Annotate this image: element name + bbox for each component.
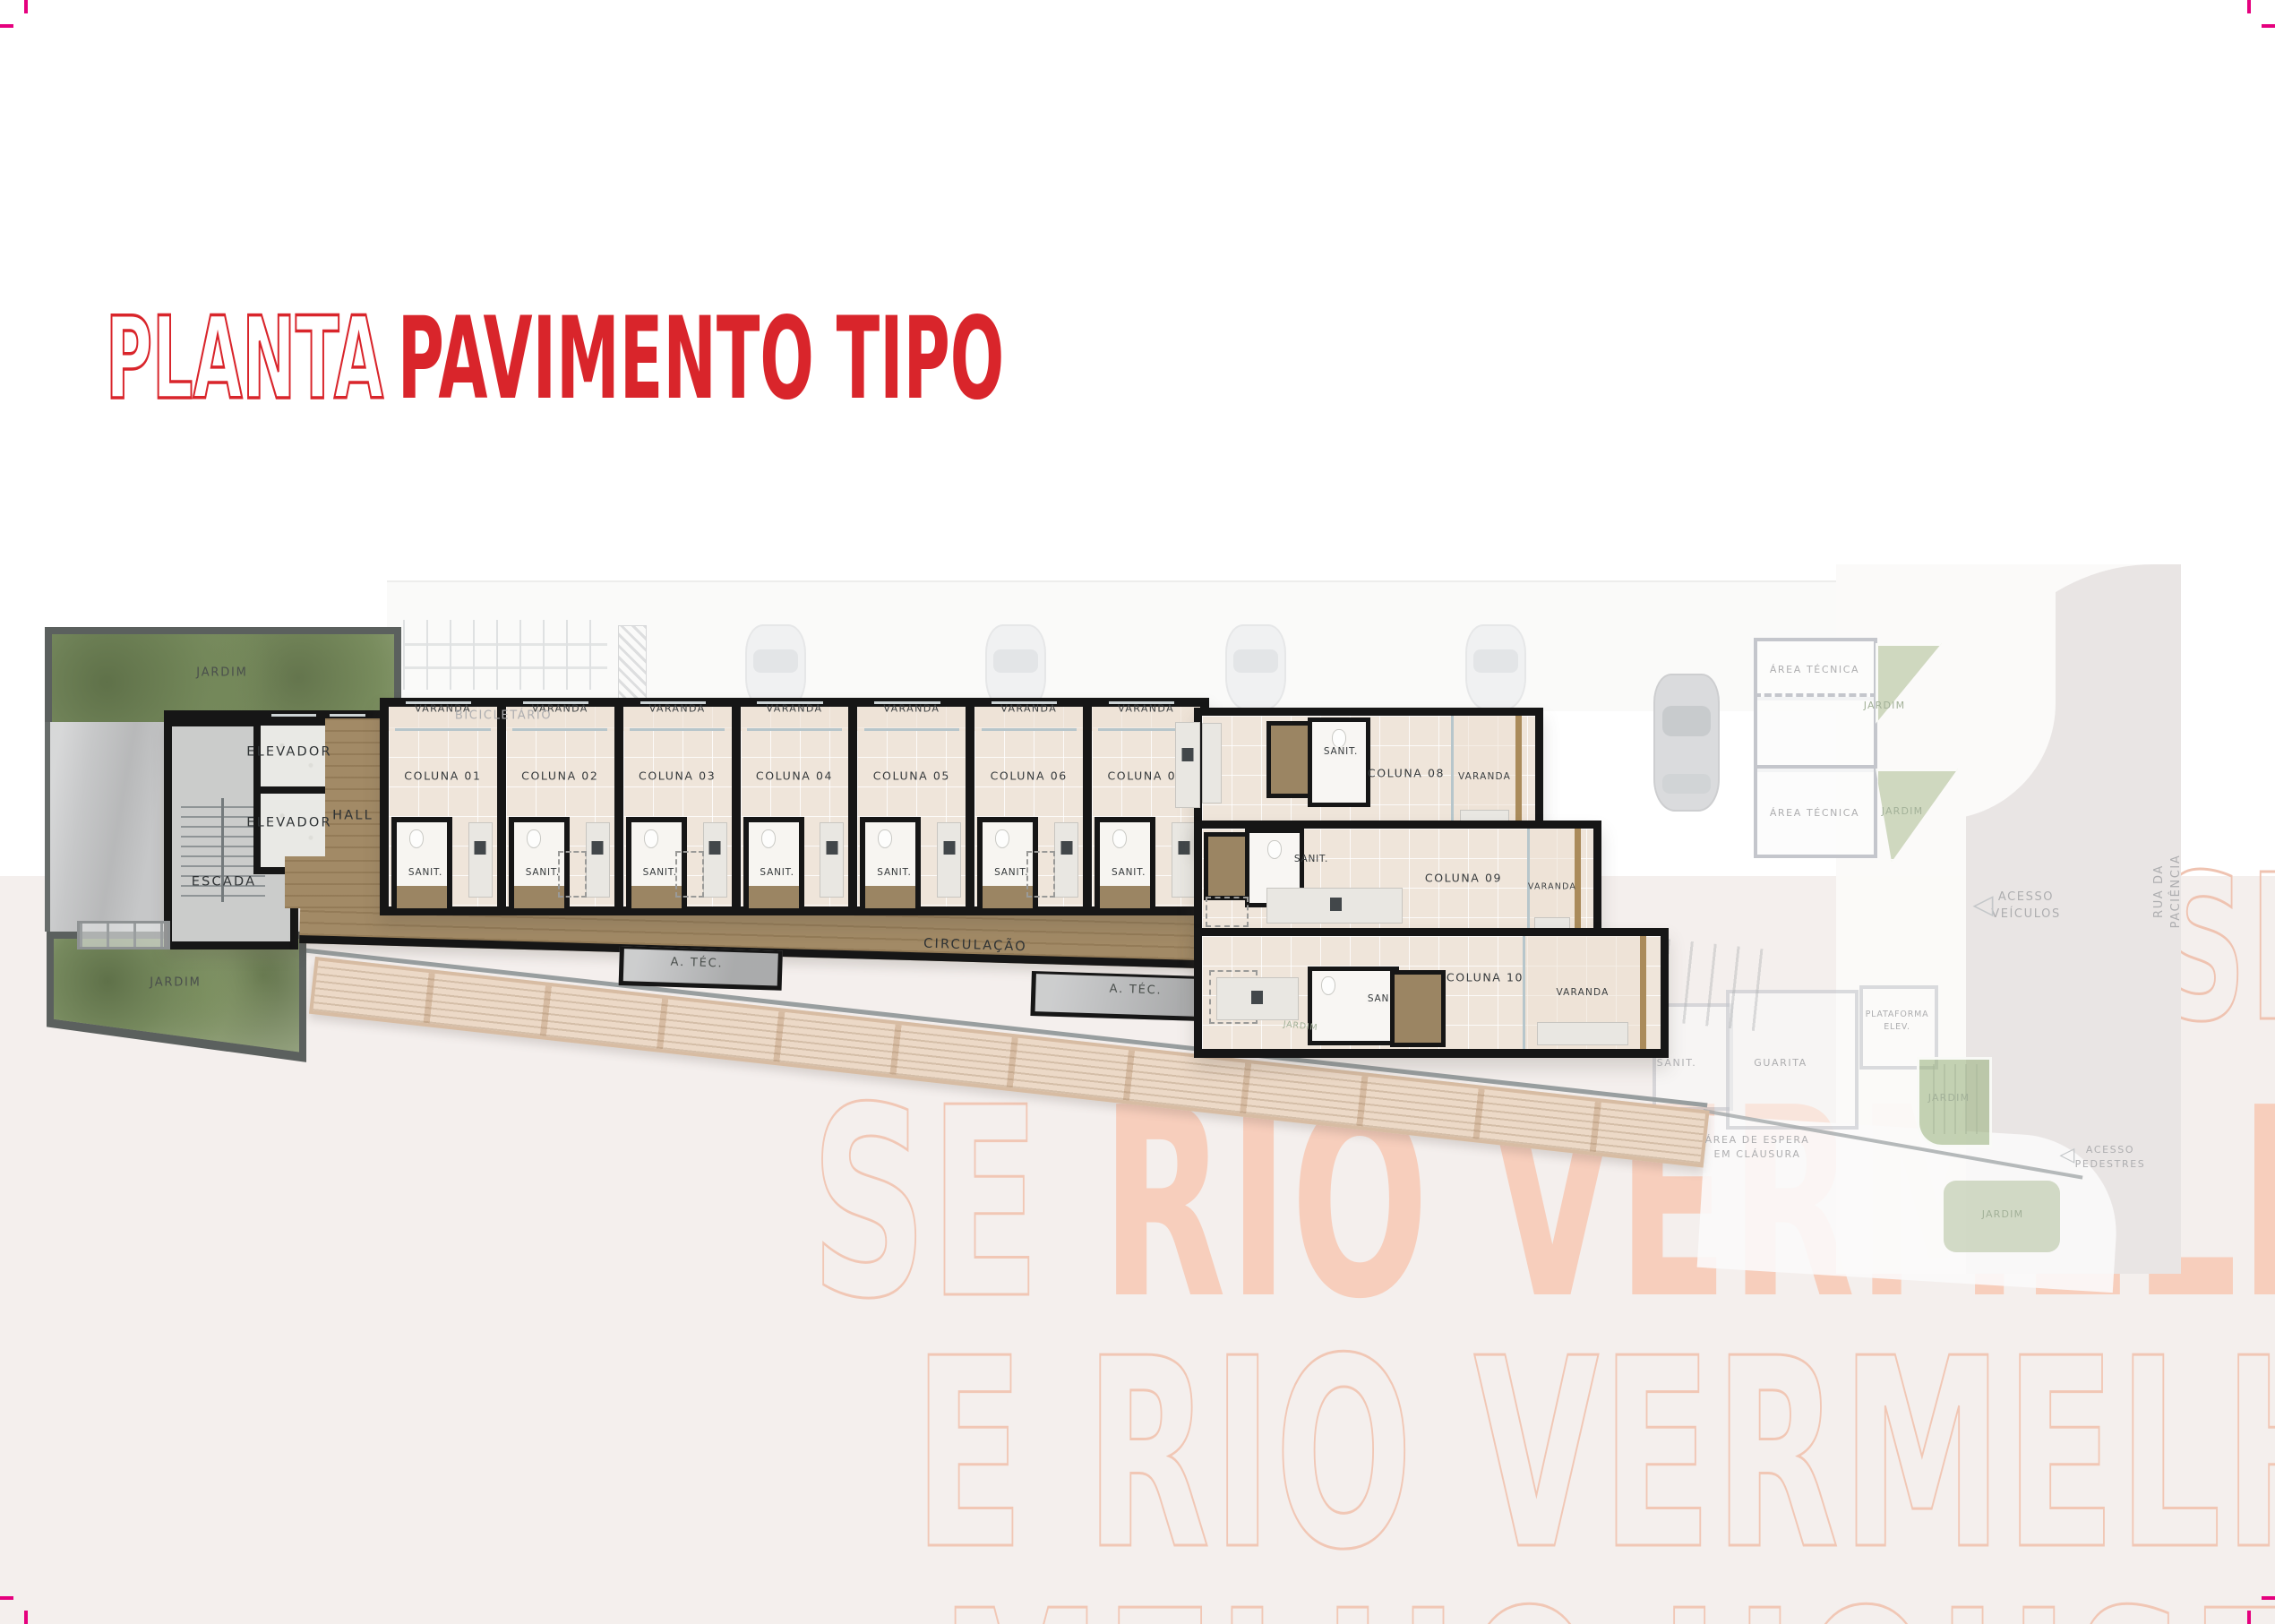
page: SE SE RIO VERMELHO E RIO VERMELHO MELHO … bbox=[0, 0, 2275, 1624]
page-title: PLANTAPAVIMENTO TIPO bbox=[106, 302, 1004, 416]
garden-bottom-right-label: JARDIM bbox=[1982, 1207, 2024, 1222]
crop-mark bbox=[2247, 1611, 2251, 1624]
crop-mark bbox=[2262, 1596, 2275, 1600]
garden-bottom-label: JARDIM bbox=[150, 975, 201, 992]
garden-right-2-label: JARDIM bbox=[1882, 804, 1924, 819]
guardhouse-wc-label: SANIT. bbox=[1657, 1056, 1697, 1070]
circulation-label: CIRCULAÇÃO bbox=[923, 935, 1027, 958]
crop-mark bbox=[24, 0, 28, 13]
technical-area-2-label: A. TÉC. bbox=[1109, 982, 1162, 1001]
crop-mark bbox=[24, 1611, 28, 1624]
crop-mark bbox=[2247, 0, 2251, 13]
area-tecnica-1-label: ÁREA TÉCNICA bbox=[1770, 663, 1859, 677]
guardhouse-label: GUARITA bbox=[1754, 1056, 1807, 1070]
street-name-label: RUA DA PACIÊNCIA bbox=[2151, 838, 2185, 945]
elevator-2-label: ELEVADOR bbox=[246, 813, 332, 832]
bike-rack-label: BICICLETÁRIO bbox=[455, 709, 552, 726]
garden-right-3-label: JARDIM bbox=[1928, 1091, 1970, 1105]
pedestrian-access-arrow-icon: ◁ bbox=[2060, 1141, 2075, 1170]
elevator-1-label: ELEVADOR bbox=[246, 743, 332, 761]
garden-strip-label: JARDIM bbox=[1283, 1018, 1318, 1035]
vehicle-access-arrow-icon: ◁ bbox=[1972, 885, 1993, 924]
crop-mark bbox=[0, 24, 13, 28]
crop-mark bbox=[0, 1596, 13, 1600]
garden-top-label: JARDIM bbox=[196, 666, 247, 683]
pedestrian-access-label: ACESSO PEDESTRES bbox=[2075, 1143, 2146, 1172]
garden-right-1-label: JARDIM bbox=[1864, 699, 1906, 713]
labels-layer: JARDIMELEVADORELEVADORHALLESCADAJARDIMCI… bbox=[0, 0, 2275, 1624]
waiting-area-label: ÁREA DE ESPERA EM CLÁUSURA bbox=[1705, 1133, 1810, 1162]
vehicle-access-label: ACESSO VEÍCULOS bbox=[1991, 889, 2061, 924]
stairs-label: ESCADA bbox=[192, 872, 256, 891]
crop-mark bbox=[2262, 24, 2275, 28]
hall-label: HALL bbox=[332, 806, 373, 825]
platform-lift-label: PLATAFORMA ELEV. bbox=[1866, 1009, 1929, 1034]
title-solid-words: PAVIMENTO TIPO bbox=[398, 292, 1004, 425]
area-tecnica-2-label: ÁREA TÉCNICA bbox=[1770, 806, 1859, 821]
technical-area-1-label: A. TÉC. bbox=[670, 955, 723, 974]
title-outline-word: PLANTA bbox=[106, 292, 383, 425]
